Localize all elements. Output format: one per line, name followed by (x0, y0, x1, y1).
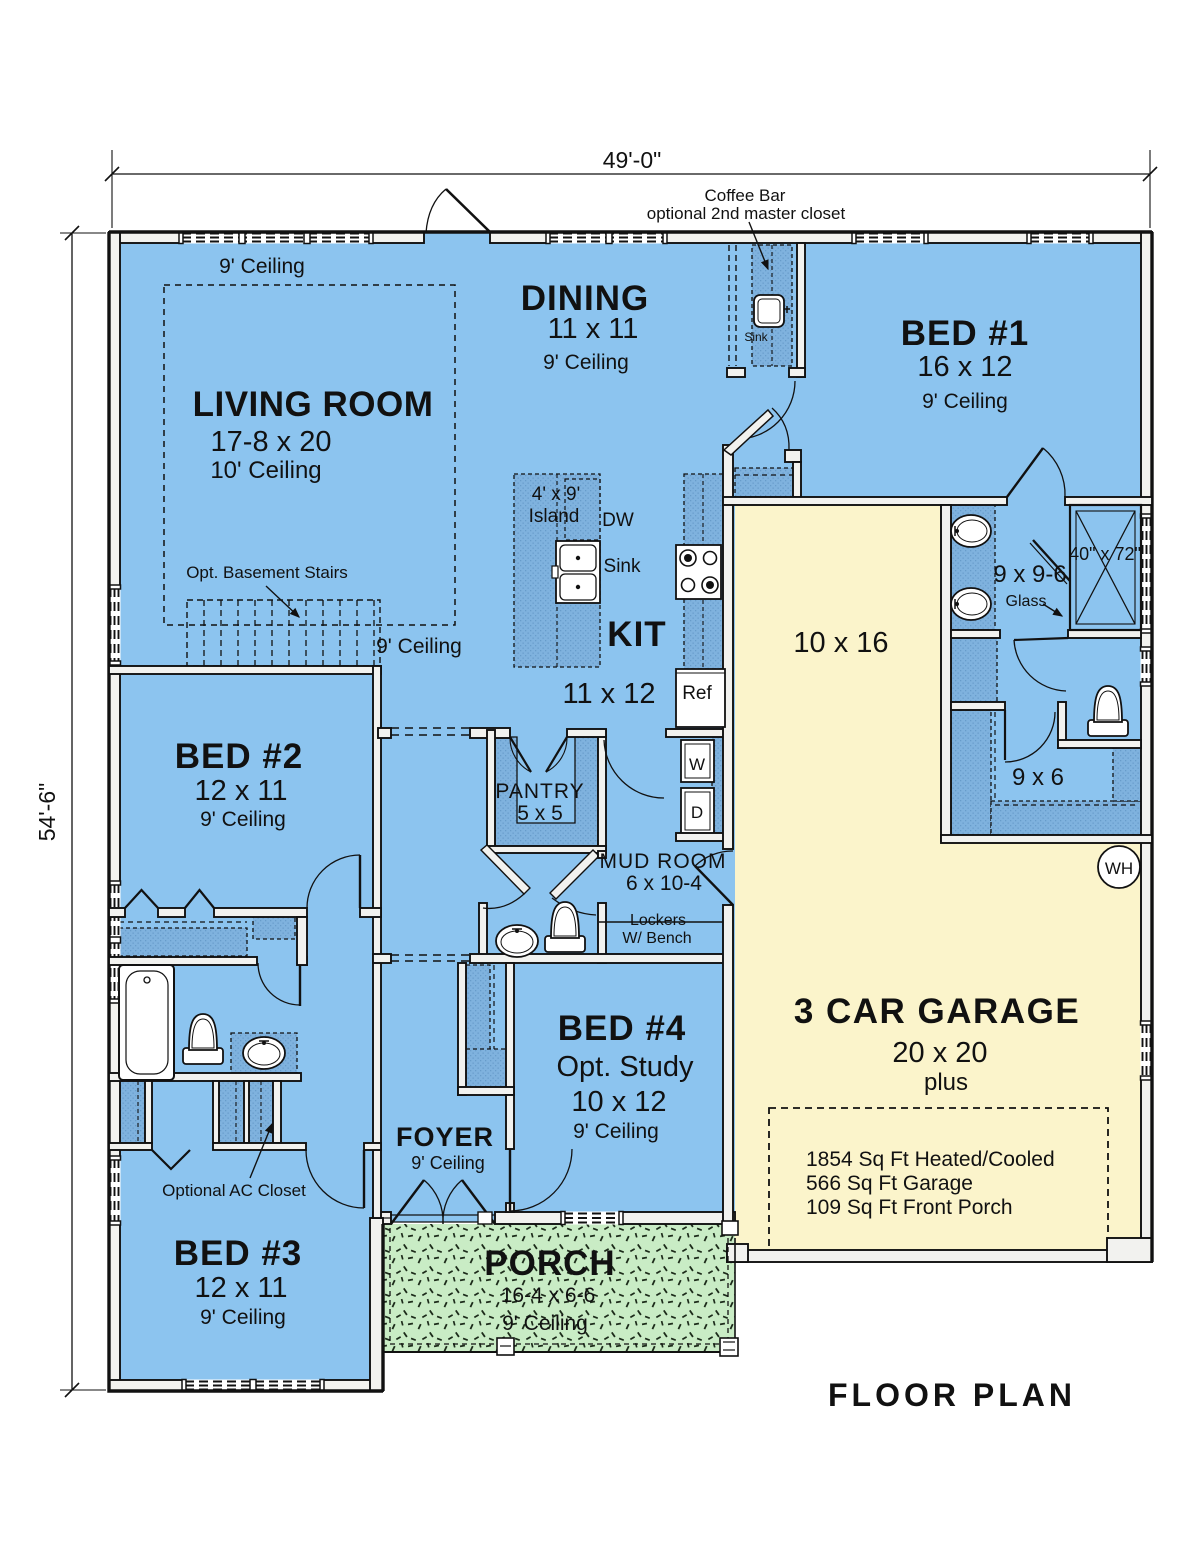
svg-text:Optional AC Closet: Optional AC Closet (162, 1181, 306, 1200)
svg-text:Opt. Basement Stairs: Opt. Basement Stairs (186, 563, 348, 582)
svg-text:54'-6": 54'-6" (34, 783, 60, 842)
svg-text:12 x 11: 12 x 11 (195, 775, 288, 807)
svg-text:9' Ceiling: 9' Ceiling (219, 255, 305, 278)
svg-text:10 x 16: 10 x 16 (793, 627, 888, 659)
svg-text:10' Ceiling: 10' Ceiling (210, 457, 321, 484)
svg-text:109 Sq Ft Front Porch: 109 Sq Ft Front Porch (806, 1196, 1013, 1219)
svg-text:9' Ceiling: 9' Ceiling (376, 635, 462, 658)
svg-text:Ref: Ref (682, 683, 712, 704)
svg-text:49'-0": 49'-0" (603, 147, 662, 173)
svg-text:Island: Island (529, 506, 580, 527)
svg-text:Opt. Study: Opt. Study (556, 1051, 694, 1083)
svg-text:17-8 x 20: 17-8 x 20 (211, 426, 332, 458)
svg-text:12 x 11: 12 x 11 (195, 1272, 288, 1304)
svg-text:PORCH: PORCH (484, 1244, 615, 1283)
svg-text:9 x 9-6: 9 x 9-6 (993, 561, 1066, 588)
svg-text:WH: WH (1105, 859, 1133, 878)
svg-text:MUD ROOM: MUD ROOM (600, 850, 727, 873)
svg-text:10 x 12: 10 x 12 (571, 1086, 666, 1118)
svg-text:16-4 x 6-6: 16-4 x 6-6 (501, 1284, 596, 1307)
svg-text:40" x 72": 40" x 72" (1069, 544, 1141, 564)
svg-text:PANTRY: PANTRY (495, 780, 584, 803)
svg-text:BED #1: BED #1 (901, 314, 1030, 353)
svg-text:FLOOR PLAN: FLOOR PLAN (828, 1377, 1076, 1413)
svg-text:9' Ceiling: 9' Ceiling (922, 390, 1008, 413)
svg-text:6 x 10-4: 6 x 10-4 (626, 872, 702, 895)
svg-text:11 x 11: 11 x 11 (548, 313, 639, 345)
svg-text:Glass: Glass (1006, 593, 1047, 610)
svg-text:BED #2: BED #2 (175, 737, 304, 776)
svg-text:9' Ceiling: 9' Ceiling (502, 1312, 588, 1335)
svg-text:KIT: KIT (607, 615, 666, 654)
svg-text:3 CAR GARAGE: 3 CAR GARAGE (794, 992, 1080, 1031)
svg-text:9' Ceiling: 9' Ceiling (543, 351, 629, 374)
svg-text:W: W (689, 755, 705, 774)
svg-text:Coffee Bar: Coffee Bar (705, 186, 786, 205)
svg-text:20 x 20: 20 x 20 (892, 1037, 987, 1069)
svg-text:Sink: Sink (604, 556, 641, 577)
svg-text:4' x 9': 4' x 9' (532, 484, 580, 505)
svg-text:9' Ceiling: 9' Ceiling (200, 808, 286, 831)
svg-text:optional 2nd master closet: optional 2nd master closet (647, 204, 846, 223)
svg-text:9' Ceiling: 9' Ceiling (573, 1120, 659, 1143)
svg-text:Sink: Sink (744, 330, 768, 344)
svg-text:BED #4: BED #4 (558, 1009, 687, 1048)
svg-text:9' Ceiling: 9' Ceiling (411, 1153, 484, 1173)
svg-text:9 x 6: 9 x 6 (1012, 764, 1064, 791)
svg-text:Lockers: Lockers (630, 912, 686, 929)
svg-text:W/ Bench: W/ Bench (622, 930, 691, 947)
svg-text:BED #3: BED #3 (174, 1234, 303, 1273)
svg-text:5 x 5: 5 x 5 (517, 802, 563, 825)
svg-text:D: D (691, 803, 703, 822)
svg-text:11 x 12: 11 x 12 (563, 678, 656, 710)
svg-text:1854 Sq Ft Heated/Cooled: 1854 Sq Ft Heated/Cooled (806, 1148, 1055, 1171)
svg-text:566 Sq Ft Garage: 566 Sq Ft Garage (806, 1172, 973, 1195)
svg-text:plus: plus (924, 1069, 968, 1096)
svg-text:9' Ceiling: 9' Ceiling (200, 1306, 286, 1329)
svg-text:FOYER: FOYER (396, 1122, 494, 1152)
svg-text:LIVING ROOM: LIVING ROOM (193, 385, 434, 424)
svg-text:16 x 12: 16 x 12 (917, 351, 1012, 383)
svg-text:DW: DW (602, 510, 634, 531)
